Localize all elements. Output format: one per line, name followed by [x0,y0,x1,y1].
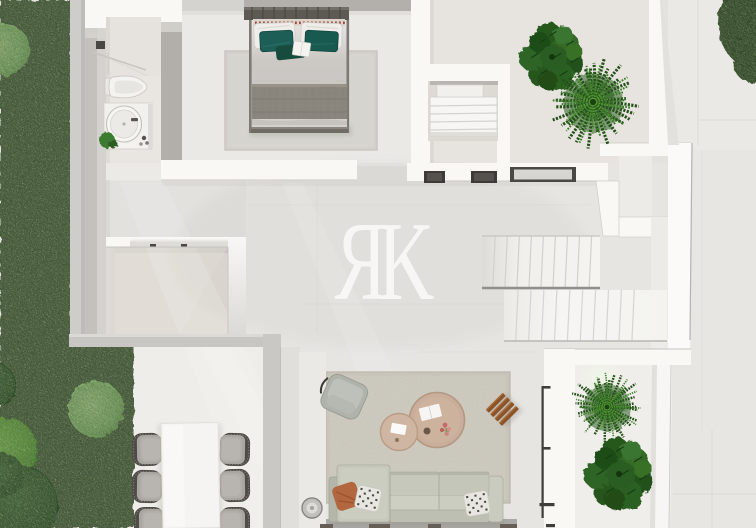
svg-text:K: K [378,199,435,323]
